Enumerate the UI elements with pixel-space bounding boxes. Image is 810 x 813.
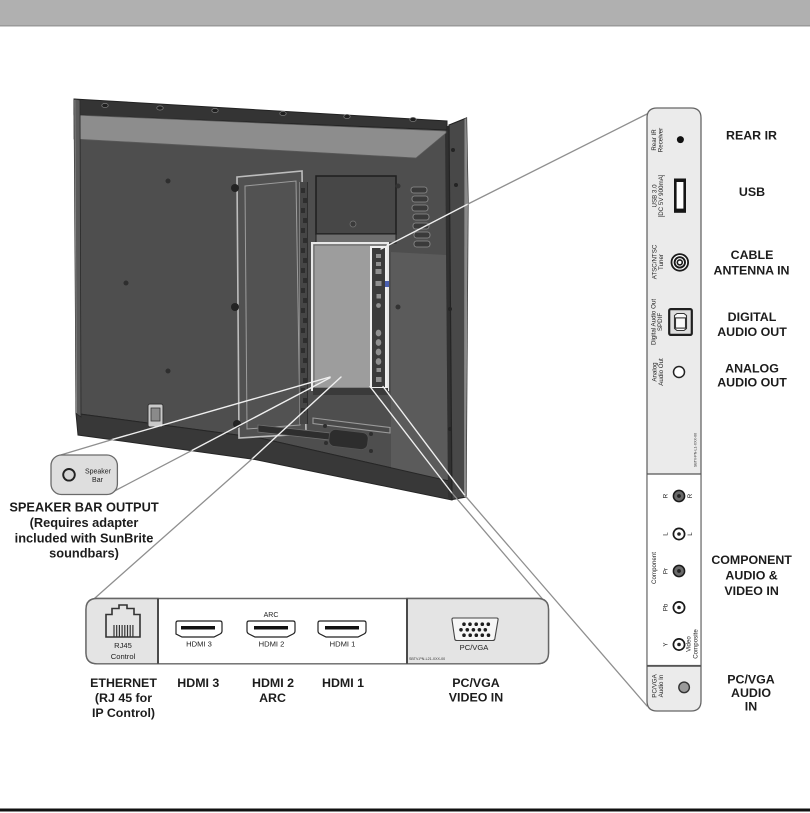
svg-text:PC/VGAAudio In: PC/VGAAudio In (652, 673, 666, 697)
svg-text:AUDIO: AUDIO (731, 686, 771, 700)
svg-text:IN: IN (745, 700, 757, 714)
svg-text:Component: Component (651, 552, 658, 584)
svg-text:L: L (663, 532, 670, 536)
svg-text:ETHERNET: ETHERNET (90, 676, 157, 690)
svg-text:PC/VGA: PC/VGA (452, 676, 500, 690)
svg-text:ARC: ARC (264, 612, 279, 619)
svg-text:L: L (687, 532, 694, 536)
svg-text:IP Control): IP Control) (92, 706, 155, 720)
svg-text:AUDIO OUT: AUDIO OUT (717, 376, 787, 390)
svg-text:Pb: Pb (663, 603, 670, 611)
svg-text:VIDEO IN: VIDEO IN (449, 691, 503, 705)
svg-text:Y: Y (663, 642, 670, 646)
svg-text:SBTV-PN-L1-XXX-00: SBTV-PN-L1-XXX-00 (694, 433, 698, 467)
svg-text:AUDIO &: AUDIO & (725, 569, 777, 583)
svg-text:HDMI 3: HDMI 3 (186, 640, 212, 649)
svg-text:Composite: Composite (693, 629, 700, 659)
svg-text:(RJ 45 for: (RJ 45 for (95, 691, 152, 705)
svg-text:USB: USB (739, 185, 765, 199)
svg-text:Control: Control (111, 652, 136, 661)
svg-text:PC/VGA: PC/VGA (460, 643, 490, 652)
svg-text:HDMI 1: HDMI 1 (322, 676, 364, 690)
svg-text:HDMI 2: HDMI 2 (259, 640, 285, 649)
svg-text:ANTENNA IN: ANTENNA IN (714, 264, 790, 278)
svg-text:Pr: Pr (663, 568, 670, 574)
svg-text:Bar: Bar (92, 477, 104, 484)
svg-text:ANALOG: ANALOG (725, 361, 779, 375)
svg-text:Speaker: Speaker (85, 469, 112, 476)
svg-text:soundbars): soundbars) (49, 546, 119, 561)
svg-text:REAR IR: REAR IR (726, 129, 777, 143)
svg-text:(Requires adapter: (Requires adapter (30, 515, 139, 530)
svg-text:AUDIO OUT: AUDIO OUT (717, 325, 787, 339)
svg-text:ARC: ARC (259, 691, 286, 705)
svg-text:R: R (663, 493, 670, 498)
svg-text:Rear IRReceiver: Rear IRReceiver (651, 128, 665, 152)
svg-text:CABLE: CABLE (731, 248, 774, 262)
svg-text:COMPONENT: COMPONENT (711, 553, 792, 567)
svg-text:PC/VGA: PC/VGA (727, 673, 775, 687)
svg-text:HDMI 1: HDMI 1 (330, 640, 356, 649)
svg-text:VIDEO IN: VIDEO IN (724, 584, 778, 598)
svg-text:included with SunBrite: included with SunBrite (15, 531, 154, 546)
svg-text:R: R (687, 493, 694, 498)
svg-text:SBTV-PN-L21-XXX-00: SBTV-PN-L21-XXX-00 (409, 657, 445, 661)
svg-text:DIGITAL: DIGITAL (728, 310, 777, 324)
svg-text:RJ45: RJ45 (114, 641, 132, 650)
svg-text:SPEAKER BAR OUTPUT: SPEAKER BAR OUTPUT (9, 500, 158, 515)
svg-text:Video: Video (686, 636, 693, 652)
svg-text:HDMI 3: HDMI 3 (177, 676, 219, 690)
svg-text:HDMI 2: HDMI 2 (252, 676, 294, 690)
